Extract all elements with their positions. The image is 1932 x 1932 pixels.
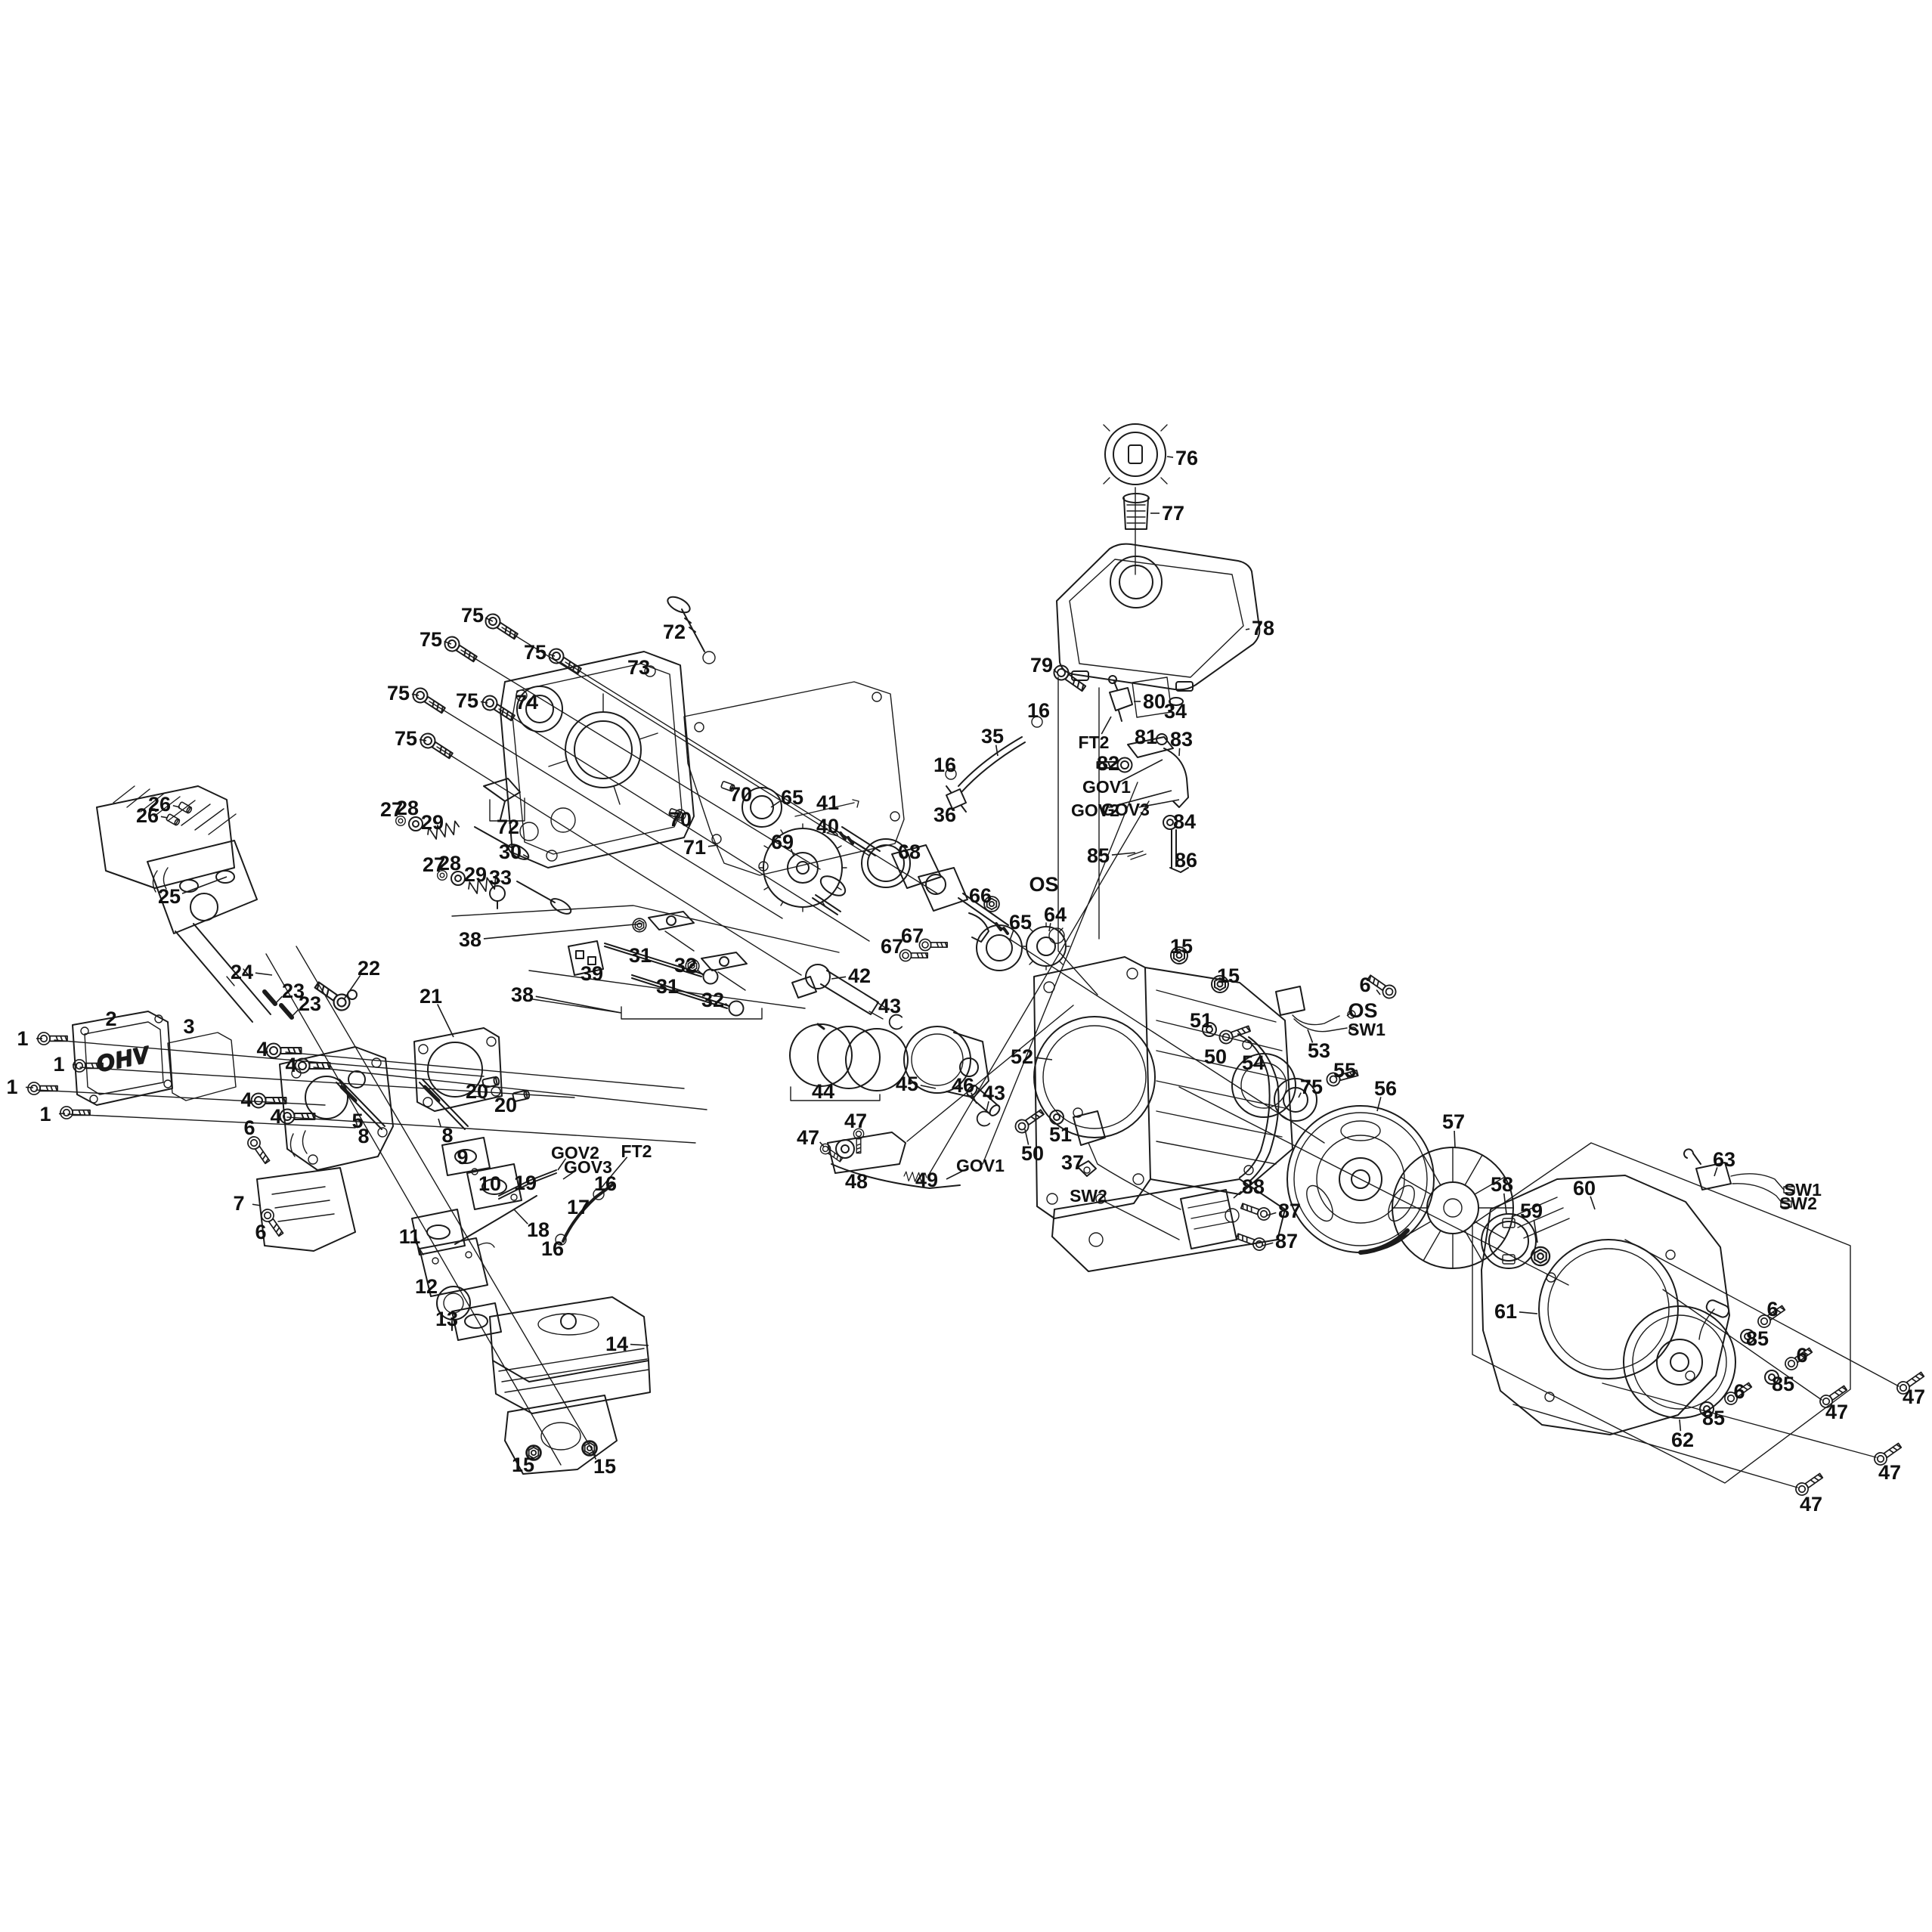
stop-switch-63 bbox=[1684, 1149, 1794, 1207]
callout-label-os: OS bbox=[1348, 999, 1377, 1022]
callout-label-29: 29 bbox=[421, 811, 444, 834]
callout-label-62: 62 bbox=[1671, 1429, 1694, 1451]
callout-label-75: 75 bbox=[387, 682, 410, 704]
callout-label-6: 6 bbox=[1766, 1298, 1778, 1321]
callout-label-67: 67 bbox=[901, 924, 924, 947]
callout-label-13: 13 bbox=[435, 1308, 458, 1330]
callout-label-74: 74 bbox=[516, 691, 538, 714]
callout-label-8: 8 bbox=[358, 1125, 369, 1147]
callout-label-6: 6 bbox=[255, 1221, 266, 1243]
leader-line bbox=[536, 996, 621, 1013]
leader-line bbox=[630, 1345, 649, 1345]
callout-label-37: 37 bbox=[1061, 1151, 1084, 1174]
callout-label-os: OS bbox=[1029, 873, 1058, 896]
callout-label-85: 85 bbox=[1087, 844, 1110, 867]
callout-label-ft2: FT2 bbox=[1079, 732, 1110, 752]
callout-label-71: 71 bbox=[683, 836, 706, 859]
callout-label-20: 20 bbox=[494, 1094, 517, 1116]
crankshaft-68 bbox=[838, 827, 1008, 933]
bolt-79 bbox=[1051, 663, 1088, 695]
leader-line bbox=[484, 924, 642, 939]
callout-label-18: 18 bbox=[527, 1218, 550, 1241]
callout-label-88: 88 bbox=[1242, 1175, 1265, 1198]
callout-label-4: 4 bbox=[256, 1038, 268, 1060]
callout-label-40: 40 bbox=[816, 815, 839, 838]
callout-label-75: 75 bbox=[461, 604, 484, 627]
callout-label-6: 6 bbox=[1359, 974, 1370, 996]
callout-label-35: 35 bbox=[981, 725, 1004, 748]
fuel-filter bbox=[1123, 494, 1149, 529]
callout-label-33: 33 bbox=[489, 866, 512, 889]
leader-line bbox=[1036, 1057, 1052, 1060]
callout-label-2: 2 bbox=[105, 1008, 116, 1030]
callout-label-22: 22 bbox=[358, 957, 380, 980]
callout-label-82: 82 bbox=[1097, 752, 1119, 775]
callout-label-84: 84 bbox=[1173, 810, 1196, 833]
callout-label-39: 39 bbox=[581, 962, 603, 985]
callout-label-80: 80 bbox=[1143, 690, 1166, 713]
callout-label-32: 32 bbox=[674, 954, 697, 977]
callout-label-29: 29 bbox=[464, 863, 487, 886]
leader-line bbox=[59, 1113, 65, 1114]
callout-label-19: 19 bbox=[514, 1172, 537, 1194]
callout-label-1: 1 bbox=[53, 1053, 64, 1076]
leader-line bbox=[291, 1009, 299, 1017]
callout-label-85: 85 bbox=[1772, 1373, 1794, 1395]
callout-label-3: 3 bbox=[183, 1015, 194, 1038]
callout-label-28: 28 bbox=[396, 797, 419, 819]
callout-label-69: 69 bbox=[771, 831, 794, 853]
callout-label-65: 65 bbox=[781, 786, 803, 809]
callout-label-8: 8 bbox=[441, 1124, 453, 1147]
callout-label-87: 87 bbox=[1278, 1200, 1301, 1222]
leader-lines bbox=[26, 457, 1717, 1460]
leader-line bbox=[921, 1085, 936, 1088]
callout-label-38: 38 bbox=[511, 983, 534, 1006]
leader-line bbox=[1167, 457, 1173, 457]
callout-label-78: 78 bbox=[1252, 617, 1274, 639]
leader-line bbox=[1101, 717, 1111, 734]
leader-line bbox=[161, 816, 168, 818]
callout-label-52: 52 bbox=[1011, 1045, 1033, 1068]
callout-label-36: 36 bbox=[933, 803, 956, 826]
crankcase-cover-73 bbox=[500, 652, 694, 868]
callout-label-15: 15 bbox=[593, 1455, 616, 1478]
callout-label-47: 47 bbox=[1800, 1493, 1822, 1516]
callout-label-24: 24 bbox=[231, 961, 253, 983]
callout-label-54: 54 bbox=[1242, 1051, 1265, 1074]
piston-rings-44 bbox=[790, 1024, 908, 1091]
leader-line bbox=[1454, 1131, 1455, 1147]
callout-label-15: 15 bbox=[1170, 935, 1193, 958]
leader-line bbox=[255, 973, 272, 975]
callout-label-64: 64 bbox=[1044, 903, 1067, 926]
callout-label-15: 15 bbox=[512, 1454, 534, 1476]
fuel-tank bbox=[1057, 488, 1259, 691]
callout-label-63: 63 bbox=[1713, 1148, 1735, 1171]
head-gasket-21 bbox=[414, 1028, 502, 1111]
callout-label-68: 68 bbox=[898, 841, 921, 863]
recoil-starter-62 bbox=[1624, 1299, 1735, 1418]
callout-label-57: 57 bbox=[1442, 1110, 1465, 1133]
cylinder-head-cover-25 bbox=[97, 786, 257, 933]
callout-label-75: 75 bbox=[456, 689, 478, 712]
callout-label-41: 41 bbox=[816, 791, 839, 814]
callout-label-87: 87 bbox=[1275, 1230, 1298, 1252]
callout-label-1: 1 bbox=[6, 1076, 17, 1098]
callout-label-gov1: GOV1 bbox=[1082, 777, 1131, 797]
leader-line bbox=[73, 1064, 77, 1065]
valve-cover-ohv-text: OHV bbox=[94, 1042, 153, 1077]
callout-label-6: 6 bbox=[1796, 1344, 1807, 1367]
callout-label-gov3: GOV3 bbox=[564, 1157, 612, 1177]
valve-cover-gasket-3 bbox=[168, 1033, 236, 1101]
callout-label-72: 72 bbox=[497, 816, 519, 838]
callout-label-38: 38 bbox=[459, 928, 481, 951]
leader-line bbox=[1267, 1212, 1276, 1215]
callout-label-17: 17 bbox=[567, 1196, 590, 1218]
callout-label-75: 75 bbox=[524, 641, 546, 664]
callout-label-79: 79 bbox=[1030, 654, 1053, 677]
callout-label-48: 48 bbox=[845, 1170, 868, 1193]
callout-label-42: 42 bbox=[848, 964, 871, 987]
callout-label-77: 77 bbox=[1162, 502, 1184, 525]
callout-label-4: 4 bbox=[240, 1088, 252, 1111]
leader-line bbox=[26, 1087, 33, 1088]
callout-label-31: 31 bbox=[656, 975, 679, 998]
callout-label-60: 60 bbox=[1573, 1177, 1596, 1200]
callout-label-sw2: SW2 bbox=[1070, 1186, 1107, 1206]
callout-label-51: 51 bbox=[1190, 1009, 1212, 1032]
leader-line bbox=[514, 1209, 528, 1224]
callout-label-gov1: GOV1 bbox=[956, 1156, 1005, 1175]
callout-label-50: 50 bbox=[1021, 1142, 1044, 1165]
callout-label-46: 46 bbox=[952, 1074, 974, 1097]
callout-label-21: 21 bbox=[420, 985, 442, 1008]
blower-housing-61-60 bbox=[1482, 1175, 1729, 1435]
callout-label-70: 70 bbox=[729, 783, 752, 806]
callout-label-86: 86 bbox=[1175, 849, 1197, 872]
callout-label-75: 75 bbox=[395, 727, 417, 750]
connecting-rod-42 bbox=[792, 964, 889, 1019]
callout-label-59: 59 bbox=[1520, 1200, 1543, 1222]
callout-label-70: 70 bbox=[669, 808, 692, 831]
flywheel-nut-59 bbox=[1531, 1247, 1550, 1265]
callout-label-sw2: SW2 bbox=[1779, 1194, 1817, 1213]
callout-label-34: 34 bbox=[1164, 700, 1187, 723]
callout-label-43: 43 bbox=[878, 995, 901, 1017]
leader-line bbox=[1519, 1312, 1537, 1314]
callout-label-76: 76 bbox=[1175, 447, 1198, 469]
callout-label-31: 31 bbox=[629, 944, 652, 967]
callout-label-20: 20 bbox=[466, 1080, 488, 1103]
callout-label-6: 6 bbox=[243, 1116, 255, 1139]
callout-label-6: 6 bbox=[1733, 1380, 1745, 1403]
callout-label-61: 61 bbox=[1494, 1300, 1517, 1323]
callout-label-83: 83 bbox=[1170, 728, 1193, 751]
callout-label-65: 65 bbox=[1009, 911, 1032, 933]
callout-label-30: 30 bbox=[499, 841, 522, 863]
leader-line bbox=[438, 1119, 441, 1127]
callout-label-47: 47 bbox=[1825, 1401, 1848, 1423]
callout-label-55: 55 bbox=[1333, 1059, 1356, 1082]
callout-label-43: 43 bbox=[983, 1082, 1005, 1104]
callout-label-53: 53 bbox=[1308, 1039, 1330, 1062]
callout-label-45: 45 bbox=[896, 1073, 918, 1095]
callout-label-7: 7 bbox=[233, 1192, 244, 1215]
callout-label-66: 66 bbox=[969, 884, 992, 907]
callout-label-4: 4 bbox=[270, 1105, 281, 1128]
air-cleaner-nuts-15 bbox=[526, 1441, 597, 1460]
callout-label-10: 10 bbox=[478, 1172, 501, 1195]
callout-label-47: 47 bbox=[1903, 1386, 1925, 1408]
pin-clips-43 bbox=[890, 1015, 989, 1126]
callout-label-16: 16 bbox=[933, 754, 956, 776]
stop-switch-wire-53 bbox=[1276, 986, 1357, 1035]
callout-label-14: 14 bbox=[605, 1333, 628, 1355]
callout-label-50: 50 bbox=[1204, 1045, 1227, 1068]
callout-label-23: 23 bbox=[299, 992, 321, 1015]
callout-label-1: 1 bbox=[17, 1027, 28, 1050]
callout-label-49: 49 bbox=[915, 1169, 938, 1191]
callout-label-58: 58 bbox=[1491, 1173, 1513, 1196]
callout-label-sw1: SW1 bbox=[1348, 1020, 1386, 1039]
valve-cover-2: OHV bbox=[73, 1011, 172, 1105]
fuel-cap bbox=[1104, 424, 1167, 485]
callout-label-75: 75 bbox=[1300, 1076, 1323, 1098]
callout-label-4: 4 bbox=[285, 1054, 296, 1076]
leader-line bbox=[438, 1004, 454, 1037]
callout-label-72: 72 bbox=[663, 621, 686, 643]
callout-label-11: 11 bbox=[399, 1225, 421, 1248]
callout-label-47: 47 bbox=[844, 1110, 867, 1132]
callout-label-12: 12 bbox=[415, 1275, 438, 1298]
carb-spacer-13 bbox=[452, 1303, 501, 1340]
callout-label-51: 51 bbox=[1049, 1123, 1072, 1146]
callout-label-67: 67 bbox=[881, 935, 903, 958]
callout-label-gov3: GOV3 bbox=[1101, 800, 1150, 819]
callout-label-16: 16 bbox=[1027, 699, 1050, 722]
callout-label-26: 26 bbox=[136, 804, 159, 827]
callout-label-25: 25 bbox=[158, 885, 181, 908]
callout-label-32: 32 bbox=[701, 989, 724, 1011]
callout-labels: 1111234444566666678891011121314151515151… bbox=[6, 447, 1925, 1516]
leader-line bbox=[1376, 990, 1380, 995]
air-cleaner-14 bbox=[490, 1297, 650, 1474]
callout-label-56: 56 bbox=[1374, 1077, 1397, 1100]
callout-label-15: 15 bbox=[1217, 964, 1240, 987]
callout-label-1: 1 bbox=[39, 1103, 51, 1125]
callout-label-73: 73 bbox=[627, 656, 650, 679]
callout-label-28: 28 bbox=[438, 852, 461, 875]
callout-label-ft2: FT2 bbox=[621, 1141, 652, 1161]
callout-label-9: 9 bbox=[457, 1146, 468, 1169]
callout-label-47: 47 bbox=[1878, 1461, 1901, 1484]
callout-label-81: 81 bbox=[1135, 726, 1157, 748]
guide-lines bbox=[36, 627, 1899, 1488]
callout-label-85: 85 bbox=[1746, 1327, 1769, 1350]
callout-label-47: 47 bbox=[797, 1126, 819, 1149]
callout-label-75: 75 bbox=[420, 628, 442, 651]
callout-label-44: 44 bbox=[812, 1080, 834, 1103]
leader-line bbox=[1262, 1243, 1273, 1246]
callout-label-85: 85 bbox=[1702, 1407, 1725, 1429]
leader-line bbox=[1246, 629, 1249, 630]
exploded-parts-diagram: OHV bbox=[0, 0, 1932, 1932]
